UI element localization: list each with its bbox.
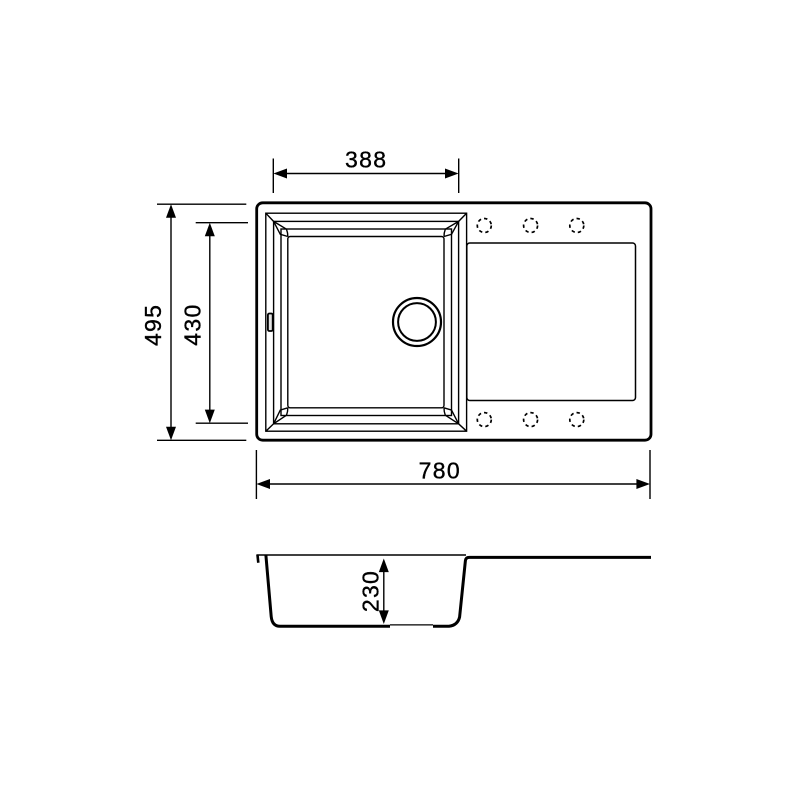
svg-text:780: 780 xyxy=(419,458,461,484)
svg-text:388: 388 xyxy=(345,147,387,173)
svg-text:495: 495 xyxy=(140,304,166,346)
svg-text:230: 230 xyxy=(357,570,383,612)
svg-text:430: 430 xyxy=(180,303,206,345)
